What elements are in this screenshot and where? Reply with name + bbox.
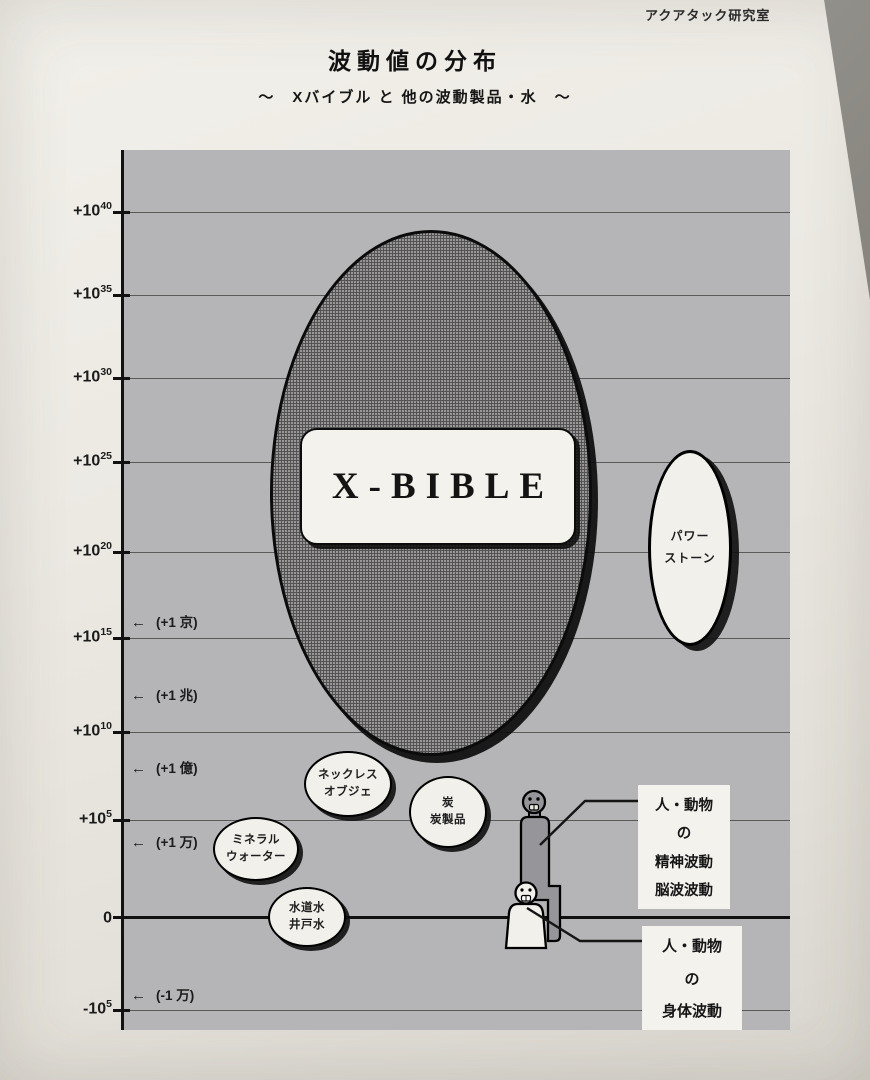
y-tick (113, 377, 130, 380)
bubble-mineral-water: ミネラル ウォーター (213, 817, 299, 881)
page-title: 波動値の分布 (0, 42, 830, 76)
photographed-page: アクアタック研究室 波動値の分布 ～ Xバイブル と 他の波動製品・水 ～ +1… (0, 0, 870, 1080)
y-tick (113, 916, 130, 919)
gridline (122, 212, 790, 213)
y-tick-label: +1020 (30, 540, 112, 560)
y-tick-label: +105 (30, 808, 112, 828)
callout-mental-waves: 人・動物 の 精神波動 脳波波動 (638, 785, 730, 909)
zero-gridline (122, 916, 790, 919)
y-axis-line (121, 150, 124, 1030)
left-arrow-icon: ← (131, 687, 146, 704)
y-tick-label: +1015 (30, 626, 112, 646)
y-tick-label: +1040 (30, 200, 112, 220)
y-tick-label: +1030 (30, 366, 112, 386)
y-tick-label: +1010 (30, 720, 112, 740)
y-tick (113, 731, 130, 734)
unit-marker-man: ←(+1 万) (131, 831, 198, 851)
chart-header: 波動値の分布 ～ Xバイブル と 他の波動製品・水 ～ (0, 42, 830, 107)
left-arrow-icon: ← (131, 614, 146, 631)
y-tick (113, 294, 130, 297)
y-tick (113, 819, 130, 822)
xbible-label-box: X-BIBLE (300, 428, 576, 545)
y-tick (113, 1009, 130, 1012)
bubble-charcoal: 炭 炭製品 (409, 776, 487, 848)
unit-marker-kei: ←(+1 京) (131, 611, 198, 631)
bubble-tap-water: 水道水 井戸水 (268, 887, 346, 947)
callout-body-waves: 人・動物 の 身体波動 (642, 926, 742, 1030)
bubble-power-stone: パワー ストーン (648, 450, 732, 646)
y-tick (113, 551, 130, 554)
unit-marker-cho: ←(+1 兆) (131, 684, 198, 704)
y-tick (113, 461, 130, 464)
xbible-label: X-BIBLE (322, 465, 554, 508)
left-arrow-icon: ← (131, 987, 146, 1004)
y-tick (113, 637, 130, 640)
y-tick-label: +1035 (30, 283, 112, 303)
unit-marker-oku: ←(+1 億) (131, 757, 198, 777)
bubble-necklace: ネックレス オブジェ (304, 751, 392, 817)
y-tick-label: +1025 (30, 450, 112, 470)
y-tick-label: -105 (30, 998, 112, 1018)
lab-name: アクアタック研究室 (645, 5, 770, 24)
left-arrow-icon: ← (131, 760, 146, 777)
unit-marker-minus-man: ←(-1 万) (131, 984, 194, 1004)
page-subtitle: ～ Xバイブル と 他の波動製品・水 ～ (0, 86, 830, 107)
y-tick-label: 0 (30, 907, 112, 927)
y-tick (113, 211, 130, 214)
left-arrow-icon: ← (131, 834, 146, 851)
